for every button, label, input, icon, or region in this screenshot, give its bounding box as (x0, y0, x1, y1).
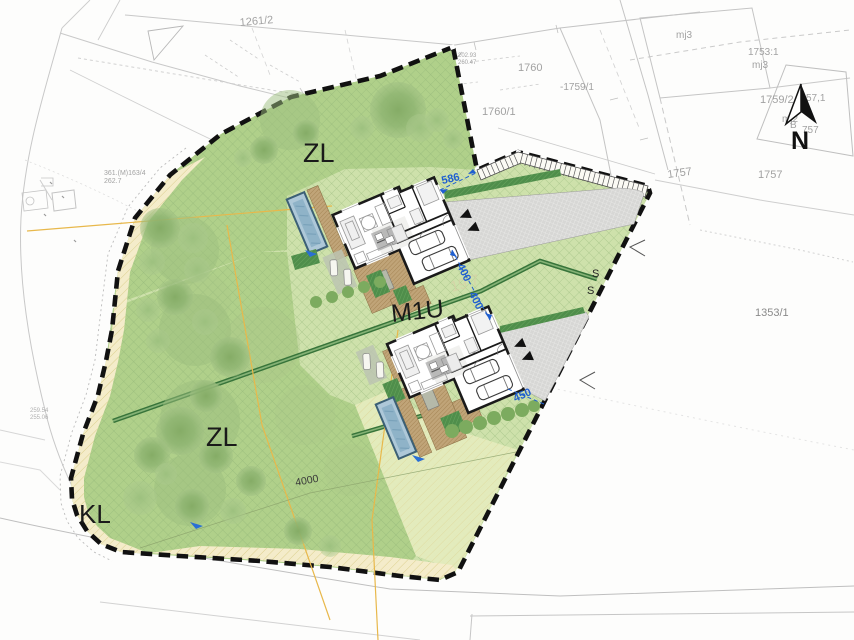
svg-text:262.7: 262.7 (104, 178, 122, 185)
svg-text:361.(M)163/4: 361.(M)163/4 (104, 170, 146, 177)
svg-text:KL: KL (79, 499, 111, 529)
svg-text:ZL: ZL (303, 138, 335, 168)
svg-text:1757: 1757 (758, 169, 782, 181)
svg-text:S: S (587, 285, 594, 297)
svg-text:57,1: 57,1 (806, 93, 826, 104)
svg-text:202.93: 202.93 (458, 53, 477, 59)
svg-text:1353/1: 1353/1 (755, 307, 789, 319)
svg-text:1760/1: 1760/1 (482, 106, 516, 118)
svg-text:255.06: 255.06 (30, 415, 49, 421)
svg-text:-1759/1: -1759/1 (560, 82, 594, 93)
svg-text:1759/2: 1759/2 (760, 94, 794, 106)
svg-text:1760: 1760 (518, 62, 542, 74)
svg-text:260.47: 260.47 (458, 60, 477, 66)
svg-text:S: S (592, 268, 599, 280)
svg-text:259.54: 259.54 (30, 408, 49, 414)
svg-text:mj3: mj3 (752, 60, 769, 71)
svg-text:M1U: M1U (390, 295, 445, 328)
svg-text:mj3: mj3 (676, 30, 693, 41)
svg-text:ZL: ZL (206, 422, 238, 452)
svg-text:1753:1: 1753:1 (748, 47, 779, 58)
svg-text:N: N (791, 127, 809, 155)
